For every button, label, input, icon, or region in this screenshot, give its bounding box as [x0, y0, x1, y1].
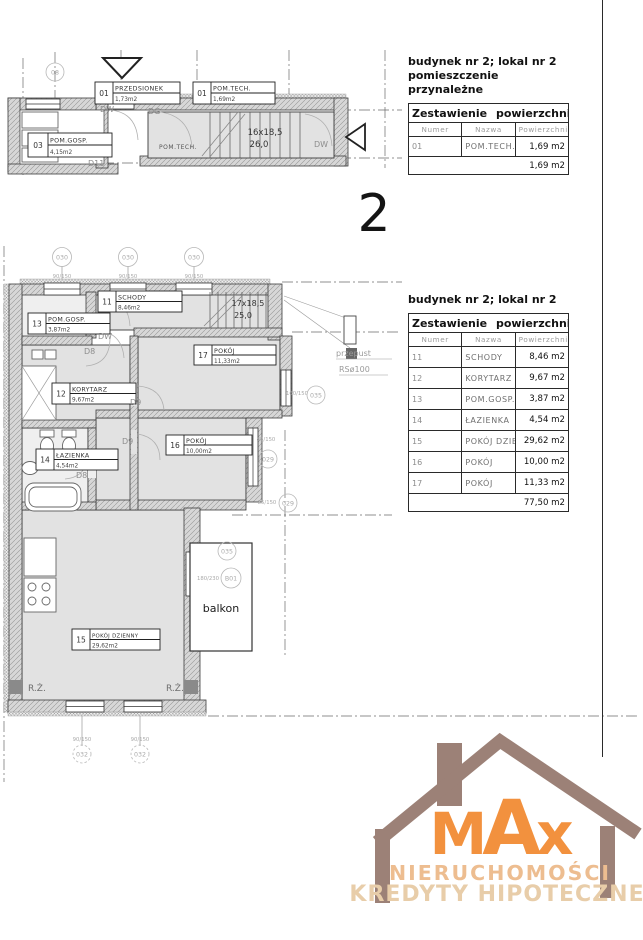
room-area: 3,87m2 [48, 328, 71, 334]
room-name: ŁAZIENKA [55, 453, 90, 460]
table-row: 17 POKÓJ 11,33 m2 [409, 473, 569, 494]
label-pokoj17: 17 POKÓJ 11,33m2 [194, 345, 276, 365]
upper-label-pomgosp: 03 POM.GOSP. 4,15m2 [28, 133, 112, 157]
column [184, 680, 198, 694]
cell-numer: 01 [409, 137, 462, 157]
axis-030: 030 [56, 255, 68, 262]
table-row: 16 POKÓJ 10,00 m2 [409, 452, 569, 473]
room-name: SCHODY [118, 295, 146, 302]
room-num: 16 [170, 441, 180, 450]
window-dim: 85/150 [258, 500, 277, 506]
room-name: PRZEDSIONEK [115, 86, 164, 93]
label-pokoj16: 16 POKÓJ 10,00m2 [166, 435, 252, 455]
upper-room-pomtech: POM.TECH. 16x18,5 26,0 [110, 110, 334, 158]
bathtub-icon [29, 487, 77, 507]
przepust-annotation: przepust RSø100 [284, 296, 392, 375]
door-label-d9: D9 [122, 437, 133, 446]
annex-area-table: Zestawienie powierzchni Numer Nazwa Powi… [408, 103, 569, 175]
room-area: 8,46m2 [118, 306, 141, 312]
label-schody: 11 SCHODY 8,46m2 [98, 291, 182, 312]
cell-powierzchnia: 11,33 m2 [515, 473, 568, 494]
room-name: POM.GOSP. [48, 317, 86, 324]
cell-nazwa: POKÓJ [462, 452, 515, 473]
col-header-powierzchnia: Powierzchnia [515, 333, 568, 347]
cell-powierzchnia: 9,67 m2 [515, 368, 568, 389]
table-row: 15 POKÓJ DZIENNY 29,62 m2 [409, 431, 569, 452]
room-name: POKÓJ DZIENNY [92, 633, 139, 640]
window-dim: 85/150 [257, 437, 276, 443]
room-num: 01 [197, 89, 207, 98]
pipe-label: RSø100 [339, 365, 370, 374]
counter-icon [24, 538, 56, 576]
room-num: 03 [33, 141, 43, 150]
cell-powierzchnia: 1,69 m2 [515, 137, 568, 157]
col-header-nazwa: Nazwa [462, 123, 515, 137]
axis-circles-030: 030 030 030 90/150 90/150 90/150 [53, 248, 204, 281]
stove-icon [24, 578, 56, 612]
room-num: 14 [40, 456, 50, 465]
floorplan-page: 08 [0, 0, 643, 940]
cell-nazwa: POM.GOSP. [462, 389, 515, 410]
col-header-numer: Numer [409, 123, 462, 137]
table-title: Zestawienie powierzchni [409, 104, 569, 123]
door-label-dw: DW [100, 105, 114, 114]
label-pomgosp: 13 POM.GOSP. 3,87m2 [28, 313, 110, 334]
door-label-d8: D8 [84, 347, 95, 356]
upper-floor-plan: 08 [8, 50, 402, 175]
label-dzienny: 15 POKÓJ DZIENNY 29,62m2 [72, 629, 160, 650]
room-num: 15 [76, 636, 86, 645]
apartment-title: budynek nr 2; lokal nr 2 [408, 293, 572, 307]
room-area: 4,54m2 [56, 464, 79, 470]
upper-stairs-dim-2: 26,0 [250, 140, 269, 150]
marker-035: 035 [221, 549, 233, 556]
cell-numer: 16 [409, 452, 462, 473]
axis-030: 030 [188, 255, 200, 262]
room-area: 1,69m2 [213, 97, 236, 103]
marker-032: 032 [76, 752, 88, 759]
marker-035: 035 [310, 393, 322, 400]
stairs-dim-1: 17x18,5 [232, 299, 265, 308]
room-name: KORYTARZ [72, 387, 108, 394]
room-name: POKÓJ [186, 436, 207, 445]
cell-powierzchnia: 8,46 m2 [515, 347, 568, 368]
max-logo: MAx NIERUCHOMOŚCI KREDYTY HIPOTECZNE [349, 741, 643, 907]
room-name: POM.TECH. [213, 86, 251, 93]
door-label-d8: D8 [76, 471, 87, 480]
axis-circle-08-label: 08 [51, 70, 59, 77]
cell-nazwa: POKÓJ [462, 473, 515, 494]
room-num: 11 [102, 298, 112, 307]
toilet-icon [62, 430, 76, 437]
cell-numer: 12 [409, 368, 462, 389]
cell-nazwa: POM.TECH. [462, 137, 515, 157]
room-num: 17 [198, 351, 208, 360]
rz-marker: R.Ż. [166, 683, 184, 694]
cell-numer: 17 [409, 473, 462, 494]
window-dim: 160/150 [286, 391, 309, 397]
col-header-nazwa: Nazwa [462, 333, 515, 347]
room-num: 01 [99, 89, 109, 98]
label-lazienka: 14 ŁAZIENKA 4,54m2 [36, 449, 118, 470]
room-num: 12 [56, 390, 66, 399]
annex-summary-block: budynek nr 2; lokal nr 2 pomieszczenie p… [408, 55, 572, 175]
marker-029: 029 [262, 457, 274, 464]
room-name: POM.GOSP. [50, 138, 88, 145]
room-num: 13 [32, 320, 42, 329]
apartment-area-table: Zestawienie powierzchni Numer Nazwa Powi… [408, 313, 569, 512]
label-korytarz: 12 KORYTARZ 9,67m2 [52, 383, 136, 404]
rz-marker: R.Ż. [28, 683, 46, 694]
table-total: 77,50 m2 [409, 494, 569, 512]
col-header-powierzchnia: Powierzchnia [515, 123, 568, 137]
table-title: Zestawienie powierzchni [409, 314, 569, 333]
cell-powierzchnia: 3,87 m2 [515, 389, 568, 410]
balcony-label: balkon [203, 602, 239, 615]
door-label-dw: DW [98, 332, 112, 341]
cell-powierzchnia: 10,00 m2 [515, 452, 568, 473]
marker-029: 029 [282, 501, 294, 508]
room-area: 9,67m2 [72, 398, 95, 404]
table-row: 01 POM.TECH. 1,69 m2 [409, 137, 569, 157]
cell-numer: 14 [409, 410, 462, 431]
table-row: 13 POM.GOSP. 3,87 m2 [409, 389, 569, 410]
apartment-summary-block: budynek nr 2; lokal nr 2 Zestawienie pow… [408, 293, 572, 512]
room-area: 4,15m2 [50, 150, 73, 156]
window-dim: 90/150 [73, 737, 92, 743]
cell-nazwa: KORYTARZ [462, 368, 515, 389]
balcony: balkon [190, 543, 252, 651]
door-label-d11: D11 [88, 159, 104, 168]
door-dim: 180/230 [197, 576, 220, 582]
marker-b01: B01 [225, 576, 237, 583]
cell-numer: 11 [409, 347, 462, 368]
table-row: 14 ŁAZIENKA 4,54 m2 [409, 410, 569, 431]
floor-number: 2 [357, 184, 390, 244]
toilet-icon [40, 430, 54, 437]
north-triangle-icon [103, 58, 141, 78]
table-row: 11 SCHODY 8,46 m2 [409, 347, 569, 368]
logo-line2: KREDYTY HIPOTECZNE [349, 882, 643, 907]
window-dim: 90/150 [131, 737, 150, 743]
room-area: 11,33m2 [214, 359, 240, 365]
annex-title-line2: pomieszczenie przynależne [408, 69, 572, 97]
axis-030: 030 [122, 255, 134, 262]
annex-title-line1: budynek nr 2; lokal nr 2 [408, 55, 572, 69]
cell-numer: 13 [409, 389, 462, 410]
cell-numer: 15 [409, 431, 462, 452]
marker-032: 032 [134, 752, 146, 759]
upper-pomtech-room-label: POM.TECH. [159, 144, 197, 151]
door-label-dg: DG [148, 107, 160, 116]
room-area: 10,00m2 [186, 449, 212, 455]
room-area: 29,62m2 [92, 644, 118, 650]
column [9, 680, 23, 694]
table-row: 12 KORYTARZ 9,67 m2 [409, 368, 569, 389]
col-header-numer: Numer [409, 333, 462, 347]
upper-label-pomtech: 01 POM.TECH. 1,69m2 [193, 82, 275, 104]
cell-nazwa: ŁAZIENKA [462, 410, 515, 431]
stairs-dim-2: 25,0 [234, 311, 252, 320]
przepust-label: przepust [336, 349, 371, 358]
upper-stairs-dim-1: 16x18,5 [248, 128, 283, 138]
door-label-dw-2: DW [314, 140, 328, 149]
direction-triangle-icon [346, 124, 365, 150]
room-name: POKÓJ [214, 346, 235, 355]
room-area: 1,73m2 [115, 97, 138, 103]
kitchen-fixtures [24, 538, 56, 612]
cell-powierzchnia: 29,62 m2 [515, 431, 568, 452]
cell-nazwa: POKÓJ DZIENNY [462, 431, 515, 452]
table-total: 1,69 m2 [409, 157, 569, 175]
cell-powierzchnia: 4,54 m2 [515, 410, 568, 431]
upper-label-przedsionek: 01 PRZEDSIONEK 1,73m2 [95, 82, 180, 104]
cell-nazwa: SCHODY [462, 347, 515, 368]
door-label-d9: D9 [130, 398, 141, 407]
